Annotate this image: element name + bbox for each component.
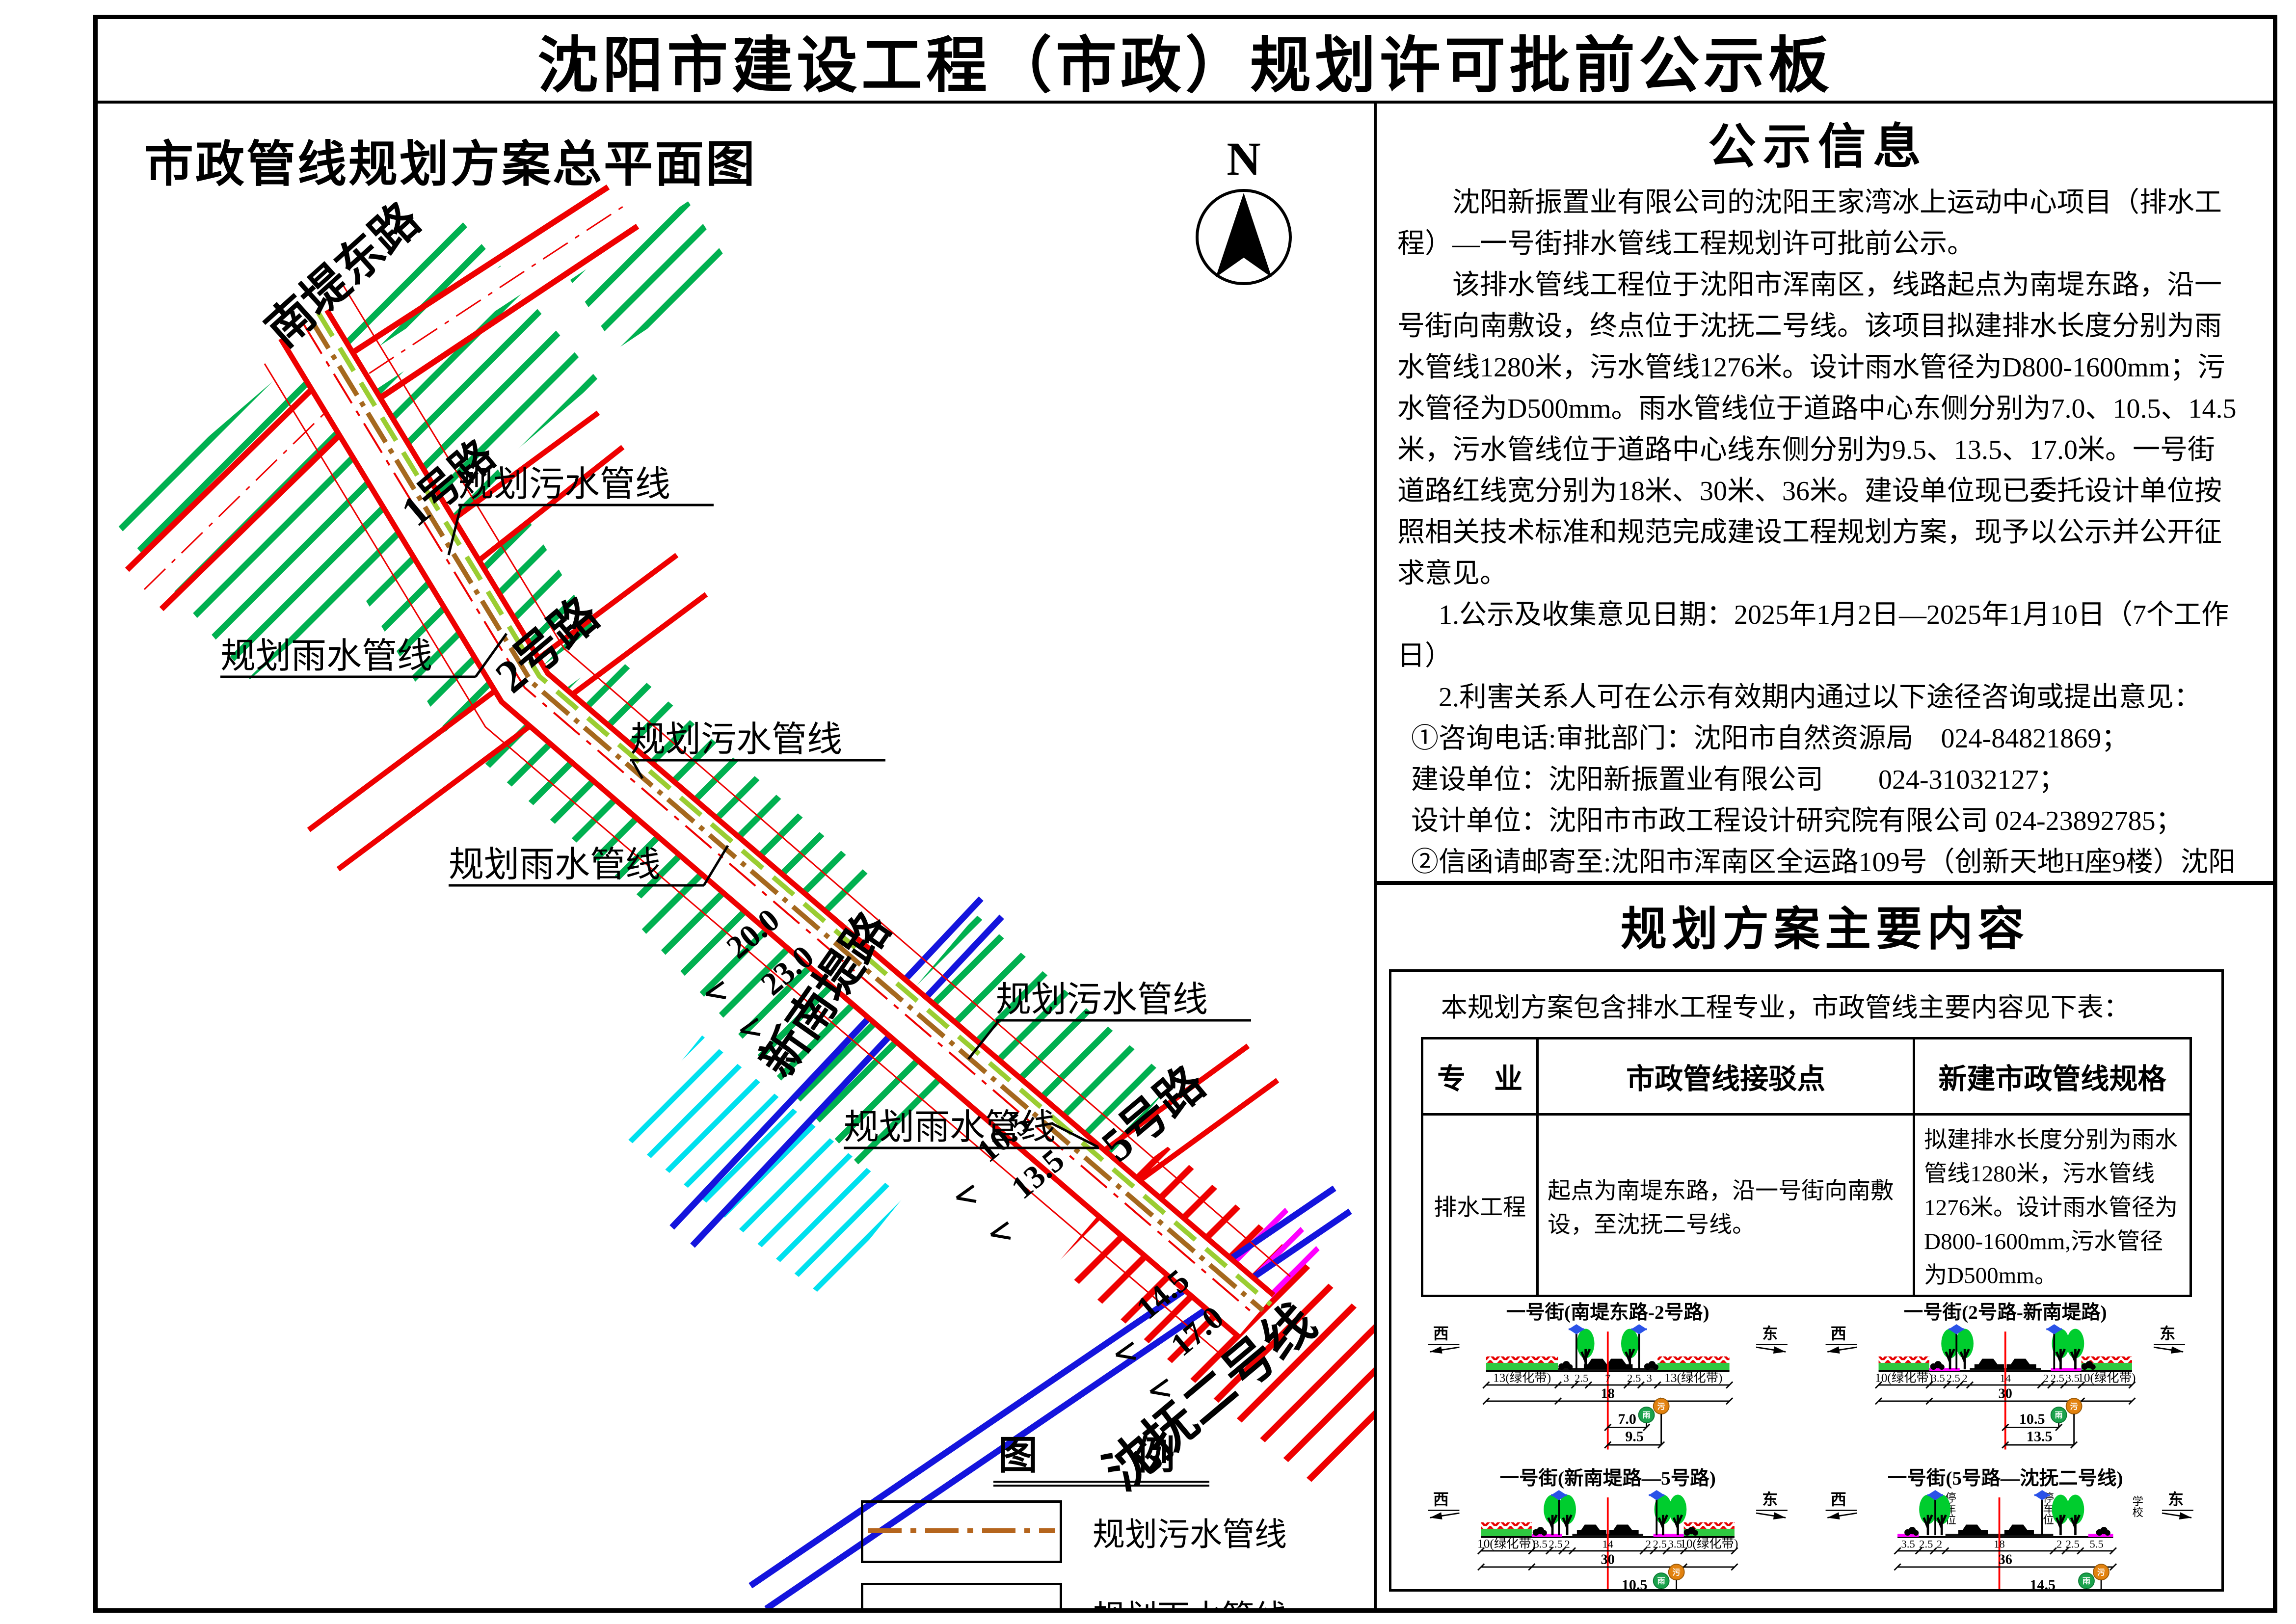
- svg-text:3: 3: [1647, 1372, 1652, 1384]
- svg-text:雨: 雨: [1657, 1577, 1665, 1586]
- section-title: 一号街(2号路-新南堤路): [1903, 1302, 2107, 1323]
- svg-text:2.5: 2.5: [1627, 1372, 1641, 1384]
- cross-section-nandidong-2hao: 一号街(南堤东路-2号路) 西 东: [1409, 1302, 1807, 1468]
- plan-content-box: 本规划方案包含排水工程专业，市政管线主要内容见下表： 专 业 市政管线接驳点 新…: [1389, 969, 2224, 1592]
- svg-text:2.5: 2.5: [1653, 1538, 1667, 1550]
- tree-icon: [1956, 1329, 1974, 1369]
- car-icon: [1958, 1524, 1987, 1535]
- col-header-connection: 市政管线接驳点: [1538, 1038, 1914, 1115]
- col-header-spec: 新建市政管线规格: [1914, 1038, 2191, 1115]
- west-label: 西: [1433, 1325, 1449, 1342]
- svg-text:5.5: 5.5: [2089, 1538, 2103, 1550]
- west-label: 西: [1830, 1325, 1846, 1342]
- west-arrow-icon: [1827, 1513, 1857, 1518]
- svg-text:3.5: 3.5: [1901, 1538, 1915, 1550]
- svg-text:30: 30: [1998, 1386, 2012, 1401]
- pipeline-plan-map: 规划污水管线 规划雨水管线 规划污水管线 规划雨水管线 规划污水管线 规划雨水管: [98, 104, 1374, 1608]
- sewage-line-sample-icon: [861, 1500, 1062, 1563]
- svg-text:14.5: 14.5: [2029, 1577, 2056, 1592]
- rain-label-2: 规划雨水管线: [449, 845, 661, 884]
- notice-board-sheet: 沈阳市建设工程（市政）规划许可批前公示板 市政管线规划方案总平面图: [93, 15, 2277, 1613]
- svg-text:2: 2: [1962, 1372, 1967, 1384]
- svg-text:30: 30: [1601, 1552, 1615, 1567]
- svg-text:2.5: 2.5: [1549, 1538, 1563, 1550]
- green-belt-right: [1657, 1363, 1729, 1371]
- svg-text:污: 污: [1657, 1402, 1665, 1411]
- svg-text:18: 18: [1994, 1538, 2005, 1550]
- svg-text:3.5: 3.5: [1534, 1538, 1548, 1550]
- svg-text:污: 污: [2070, 1402, 2078, 1411]
- svg-text:10.5: 10.5: [1622, 1577, 1648, 1592]
- cell-spec: 拟建排水长度分别为雨水管线1280米，污水管线1276米。设计雨水管径为D800…: [1914, 1115, 2191, 1296]
- sidewalk-right: [2051, 1368, 2081, 1371]
- tree-icon: [2066, 1494, 2084, 1535]
- cell-profession: 排水工程: [1422, 1115, 1538, 1296]
- east-arrow-icon: [2162, 1513, 2191, 1518]
- svg-text:2: 2: [1564, 1538, 1570, 1550]
- svg-text:10(绿化带): 10(绿化带): [1875, 1371, 1933, 1384]
- svg-text:7: 7: [1605, 1372, 1610, 1384]
- section-title: 一号街(5号路—沈抚二号线): [1887, 1468, 2123, 1489]
- green-belt-left: [1481, 1529, 1532, 1537]
- west-label: 西: [1830, 1491, 1846, 1508]
- svg-text:3.5: 3.5: [1931, 1372, 1945, 1384]
- svg-text:2: 2: [2043, 1372, 2048, 1384]
- rain-line-sample-icon: [861, 1583, 1062, 1608]
- sidewalk-right: [1654, 1534, 1684, 1537]
- map-title: 市政管线规划方案总平面图: [144, 124, 757, 195]
- notice-paragraph: ①咨询电话:审批部门：沈阳市自然资源局 024-84821869；: [1397, 718, 2239, 759]
- sewage-label-3: 规划污水管线: [996, 980, 1208, 1019]
- svg-text:10(绿化带): 10(绿化带): [1680, 1537, 1738, 1550]
- green-belt-left: [1486, 1363, 1558, 1371]
- svg-text:2.5: 2.5: [1575, 1372, 1588, 1384]
- svg-text:雨: 雨: [1643, 1411, 1651, 1420]
- public-notice-panel: 公示信息 沈阳新振置业有限公司的沈阳王家湾冰上运动中心项目（排水工程）—一号街排…: [1377, 104, 2273, 885]
- notice-title: 公示信息: [1397, 107, 2239, 177]
- sewage-label-2: 规划污水管线: [630, 720, 842, 759]
- svg-text:2: 2: [1646, 1538, 1651, 1550]
- green-belt-left: [1878, 1363, 1929, 1371]
- svg-text:7.0: 7.0: [1618, 1411, 1636, 1427]
- svg-text:2.5: 2.5: [2050, 1372, 2064, 1384]
- svg-text:2.5: 2.5: [1946, 1372, 1960, 1384]
- sheet-header: 沈阳市建设工程（市政）规划许可批前公示板: [98, 19, 2273, 104]
- car-icon: [1609, 1524, 1639, 1535]
- rain-label-1: 规划雨水管线: [220, 637, 432, 676]
- svg-text:2.5: 2.5: [2065, 1538, 2079, 1550]
- section-title: 一号街(新南堤路—5号路): [1500, 1468, 1716, 1489]
- svg-text:污: 污: [2097, 1568, 2105, 1577]
- notice-paragraph: 2.利害关系人可在公示有效期内通过以下途径咨询或提出意见：: [1397, 677, 2239, 718]
- car-icon: [2004, 1524, 2033, 1535]
- svg-text:10(绿化带): 10(绿化带): [1477, 1537, 1535, 1550]
- east-arrow-icon: [1756, 1347, 1786, 1352]
- car-icon: [2006, 1358, 2036, 1369]
- svg-text:污: 污: [1673, 1568, 1681, 1577]
- plan-title: 规划方案主要内容: [1377, 892, 2273, 958]
- east-arrow-icon: [1756, 1513, 1786, 1518]
- pipeline-spec-table: 专 业 市政管线接驳点 新建市政管线规格 排水工程 起点为南堤东路，沿一号街向南…: [1421, 1037, 2191, 1297]
- table-row: 排水工程 起点为南堤东路，沿一号街向南敷设，至沈抚二号线。 拟建排水长度分别为雨…: [1422, 1115, 2190, 1296]
- notice-paragraph: 建设单位：沈阳新振置业有限公司 024-31032127；: [1397, 759, 2239, 800]
- east-label: 东: [2168, 1491, 2184, 1508]
- car-icon: [1974, 1358, 2003, 1369]
- north-arrow-icon: N: [1197, 133, 1290, 284]
- master-plan-map-panel: 市政管线规划方案总平面图: [98, 104, 1377, 1608]
- legend-item-rain: 规划雨水管线: [861, 1583, 1342, 1608]
- east-label: 东: [2160, 1325, 2175, 1342]
- svg-text:2.5: 2.5: [1919, 1538, 1933, 1550]
- east-label: 东: [1762, 1491, 1778, 1508]
- cross-section-5hao-shenfu: 一号街(5号路—沈抚二号线) 西 东 停车位 停车位 学校: [1807, 1468, 2204, 1592]
- west-label: 西: [1433, 1491, 1449, 1508]
- svg-text:10(绿化带): 10(绿化带): [2078, 1371, 2136, 1384]
- east-label: 东: [1762, 1325, 1778, 1342]
- svg-text:13.5: 13.5: [2026, 1429, 2052, 1445]
- sheet-title: 沈阳市建设工程（市政）规划许可批前公示板: [537, 16, 1833, 104]
- svg-text:13(绿化带): 13(绿化带): [1493, 1371, 1551, 1384]
- west-arrow-icon: [1430, 1347, 1459, 1352]
- cell-connection: 起点为南堤东路，沿一号街向南敷设，至沈抚二号线。: [1538, 1115, 1914, 1296]
- east-arrow-icon: [2154, 1347, 2183, 1352]
- section-title: 一号街(南堤东路-2号路): [1506, 1302, 1709, 1323]
- cross-section-xinnandi-5hao: 一号街(新南堤路—5号路) 西 东: [1409, 1468, 1807, 1592]
- notice-paragraph: 沈阳新振置业有限公司的沈阳王家湾冰上运动中心项目（排水工程）—一号街排水管线工程…: [1397, 182, 2239, 265]
- school-label: 学校: [2131, 1495, 2143, 1518]
- table-header-row: 专 业 市政管线接驳点 新建市政管线规格: [1422, 1038, 2190, 1115]
- svg-text:2: 2: [2056, 1538, 2061, 1550]
- svg-text:14: 14: [1602, 1538, 1613, 1550]
- notice-paragraph: 设计单位：沈阳市市政工程设计研究院有限公司 024-23892785；: [1397, 800, 2239, 842]
- notice-paragraph: 1.公示及收集意见日期：2025年1月2日—2025年1月10日（7个工作日）: [1397, 594, 2239, 677]
- svg-text:9.5: 9.5: [1625, 1429, 1644, 1445]
- legend: 图 例 规划污水管线 规划雨水管线: [861, 1424, 1342, 1608]
- svg-text:雨: 雨: [2055, 1411, 2062, 1420]
- notice-paragraph: ②信函请邮寄至:沈阳市浑南区全运路109号（创新天地H座9楼）沈阳市自然资源局浑…: [1397, 842, 2239, 885]
- svg-text:13(绿化带): 13(绿化带): [1664, 1371, 1722, 1384]
- west-arrow-icon: [1430, 1513, 1459, 1518]
- tree-icon: [2052, 1494, 2069, 1535]
- col-header-profession: 专 业: [1422, 1038, 1538, 1115]
- legend-item-sewage: 规划污水管线: [861, 1500, 1342, 1563]
- tree-icon: [1558, 1494, 1576, 1535]
- plan-intro: 本规划方案包含排水工程专业，市政管线主要内容见下表：: [1409, 985, 2204, 1024]
- svg-text:10.5: 10.5: [2019, 1411, 2045, 1427]
- svg-text:雨: 雨: [2082, 1577, 2090, 1586]
- svg-text:18: 18: [1601, 1386, 1615, 1401]
- svg-text:2: 2: [1936, 1538, 1942, 1550]
- svg-text:36: 36: [1998, 1552, 2012, 1567]
- legend-title: 图 例: [861, 1424, 1342, 1481]
- cross-section-2hao-xinnandi: 一号街(2号路-新南堤路) 西 东: [1807, 1302, 2204, 1468]
- svg-text:3: 3: [1564, 1372, 1569, 1384]
- plan-content-panel: 规划方案主要内容 本规划方案包含排水工程专业，市政管线主要内容见下表： 专 业 …: [1377, 885, 2273, 1608]
- car-icon: [1577, 1524, 1606, 1535]
- svg-text:N: N: [1227, 133, 1260, 185]
- notice-paragraph: 该排水管线工程位于沈阳市浑南区，线路起点为南堤东路，沿一号街向南敷设，终点位于沈…: [1397, 265, 2239, 594]
- street-cross-sections: 一号街(南堤东路-2号路) 西 东: [1409, 1302, 2204, 1592]
- west-arrow-icon: [1827, 1347, 1857, 1352]
- svg-text:14: 14: [2000, 1372, 2011, 1384]
